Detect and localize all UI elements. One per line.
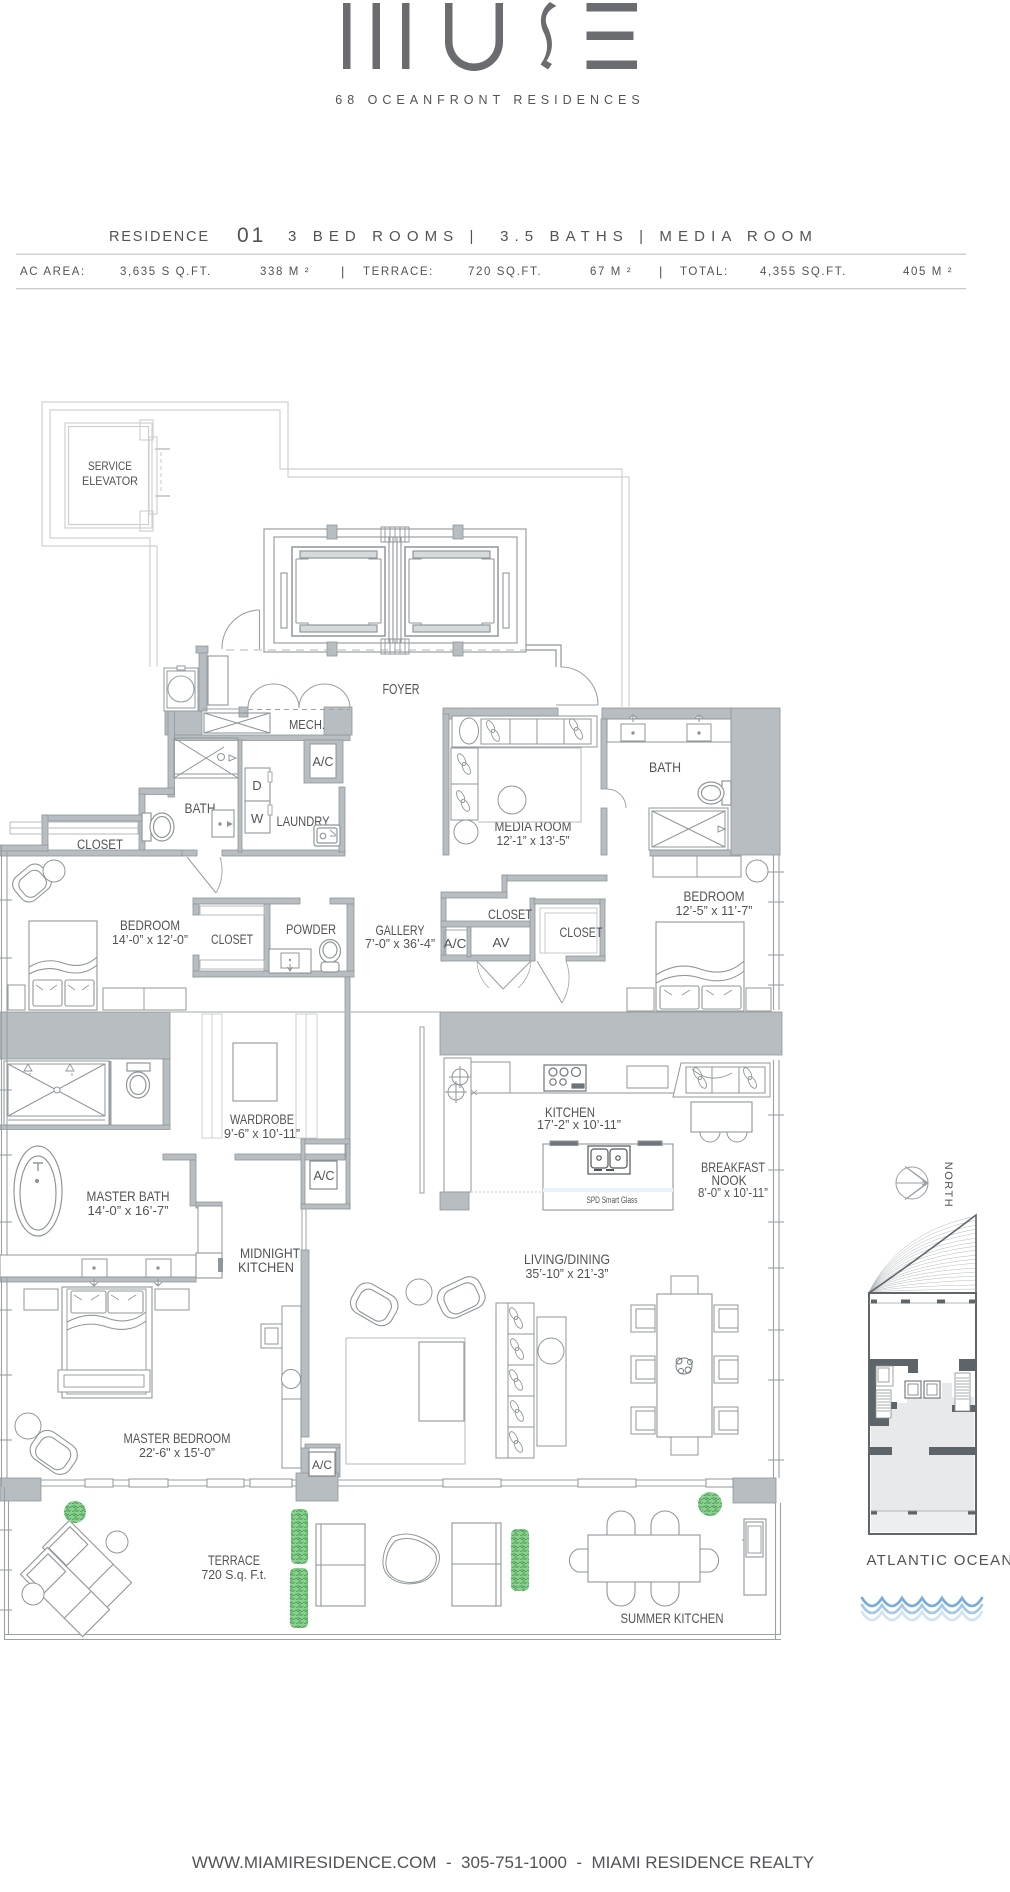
- svg-text:MEDIA ROOM: MEDIA ROOM: [495, 818, 572, 834]
- svg-text:12’-1” x 13’-5”: 12’-1” x 13’-5”: [497, 833, 570, 848]
- svg-text:D: D: [252, 778, 261, 793]
- svg-text:TERRACE:: TERRACE:: [363, 266, 434, 278]
- svg-text:14’-0” x 12’-0”: 14’-0” x 12’-0”: [112, 932, 188, 947]
- svg-text:BATH: BATH: [185, 801, 216, 816]
- svg-text:WARDROBE: WARDROBE: [230, 1111, 294, 1127]
- svg-text:|: |: [659, 264, 664, 279]
- svg-text:ELEVATOR: ELEVATOR: [82, 476, 138, 488]
- svg-text:NORTH: NORTH: [942, 1162, 954, 1208]
- svg-text:SUMMER KITCHEN: SUMMER KITCHEN: [621, 1611, 724, 1626]
- svg-text:A/C: A/C: [312, 1458, 332, 1472]
- svg-text:8’-0” x 10’-11”: 8’-0” x 10’-11”: [698, 1185, 768, 1200]
- svg-text:A/C: A/C: [314, 1169, 335, 1183]
- svg-text:01: 01: [237, 224, 266, 247]
- svg-text:BATH: BATH: [649, 760, 681, 775]
- svg-text:|: |: [341, 264, 346, 279]
- svg-text:TERRACE: TERRACE: [208, 1552, 260, 1568]
- svg-text:MECH.: MECH.: [289, 718, 325, 732]
- svg-text:720 SQ.FT.: 720 SQ.FT.: [468, 266, 542, 278]
- svg-text:W: W: [251, 811, 264, 826]
- svg-text:338 M ²: 338 M ²: [260, 266, 310, 278]
- svg-text:MASTER BEDROOM: MASTER BEDROOM: [124, 1430, 231, 1446]
- svg-text:CLOSET: CLOSET: [560, 925, 603, 940]
- svg-text:405 M ²: 405 M ²: [903, 266, 953, 278]
- svg-text:POWDER: POWDER: [286, 922, 336, 937]
- svg-text:35’-10” x 21’-3”: 35’-10” x 21’-3”: [526, 1266, 609, 1281]
- svg-text:CLOSET: CLOSET: [77, 837, 123, 852]
- svg-text:FOYER: FOYER: [383, 682, 420, 698]
- svg-text:TOTAL:: TOTAL:: [680, 266, 729, 278]
- svg-text:CLOSET: CLOSET: [211, 932, 253, 947]
- svg-text:BEDROOM: BEDROOM: [684, 888, 745, 904]
- svg-text:KITCHEN: KITCHEN: [238, 1260, 294, 1275]
- svg-text:AV: AV: [493, 936, 511, 950]
- svg-text:RESIDENCE: RESIDENCE: [109, 229, 210, 245]
- svg-text:3 BED ROOMS | 3.5 BATHS | MED: 3 BED ROOMS | 3.5 BATHS | MEDIA ROOM: [288, 228, 818, 245]
- svg-text:A/C: A/C: [444, 937, 467, 951]
- svg-text:ATLANTIC OCEAN: ATLANTIC OCEAN: [866, 1552, 1010, 1569]
- svg-text:22'-6" x 15'-0”: 22'-6" x 15'-0”: [139, 1445, 215, 1460]
- svg-text:SPD Smart Glass: SPD Smart Glass: [587, 1195, 638, 1206]
- svg-text:720 S.q. F.t.: 720 S.q. F.t.: [202, 1567, 267, 1582]
- svg-text:12’-5” x 11’-7”: 12’-5” x 11’-7”: [676, 903, 753, 918]
- svg-text:7’-0” x 36’-4”: 7’-0” x 36’-4”: [365, 936, 435, 951]
- svg-text:68 OCEANFRONT RESIDENCES: 68 OCEANFRONT RESIDENCES: [335, 93, 644, 107]
- svg-text:MIDNIGHT: MIDNIGHT: [240, 1246, 300, 1261]
- svg-text:A/C: A/C: [313, 755, 334, 769]
- svg-text:67 M ²: 67 M ²: [590, 266, 632, 278]
- svg-text:4,355 SQ.FT.: 4,355 SQ.FT.: [760, 266, 847, 278]
- svg-text:LIVING/DINING: LIVING/DINING: [524, 1251, 610, 1267]
- svg-text:3,635 S Q.FT.: 3,635 S Q.FT.: [120, 266, 212, 278]
- svg-text:WWW.MIAMIRESIDENCE.COM - 305: WWW.MIAMIRESIDENCE.COM - 305-751-1000 - …: [192, 1853, 814, 1872]
- svg-text:AC AREA:: AC AREA:: [20, 266, 86, 278]
- svg-text:BEDROOM: BEDROOM: [120, 917, 180, 933]
- svg-text:SERVICE: SERVICE: [88, 461, 132, 473]
- svg-text:9’-6” x 10’-11”: 9’-6” x 10’-11”: [224, 1126, 300, 1141]
- svg-text:CLOSET: CLOSET: [488, 907, 532, 922]
- svg-text:17’-2” x 10’-11”: 17’-2” x 10’-11”: [537, 1117, 621, 1132]
- svg-text:14’-0” x 16’-7”: 14’-0” x 16’-7”: [88, 1203, 169, 1218]
- svg-text:MASTER BATH: MASTER BATH: [87, 1188, 170, 1204]
